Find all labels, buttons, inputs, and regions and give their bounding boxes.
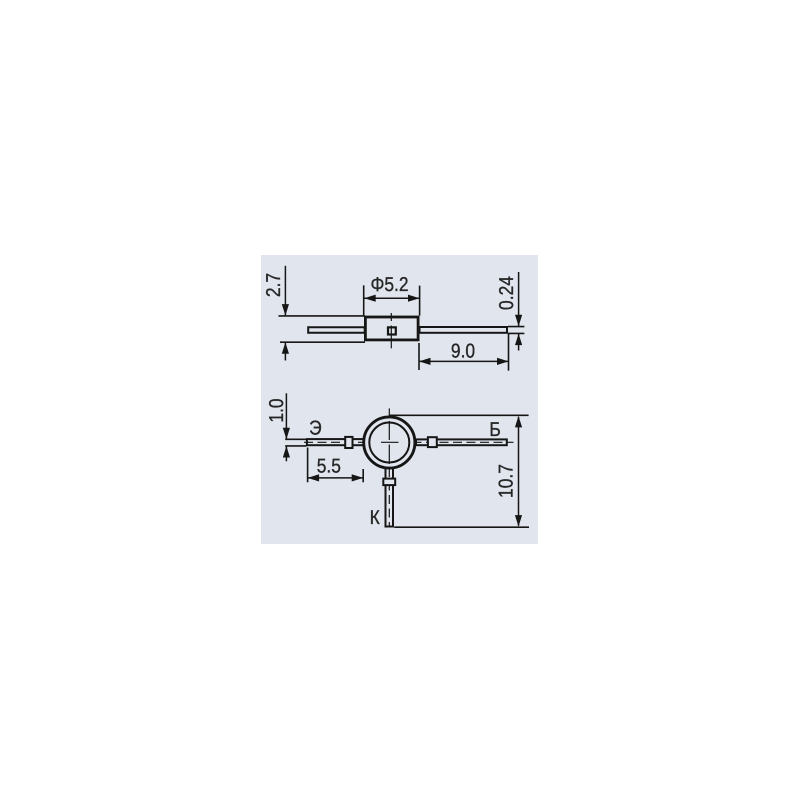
svg-text:9.0: 9.0 <box>451 340 475 362</box>
svg-text:10.7: 10.7 <box>496 464 518 498</box>
svg-text:Φ5.2: Φ5.2 <box>370 274 408 296</box>
svg-text:2.7: 2.7 <box>263 273 285 297</box>
svg-text:5.5: 5.5 <box>317 455 341 477</box>
svg-text:1.0: 1.0 <box>266 398 288 422</box>
svg-text:К: К <box>370 507 380 529</box>
svg-text:Б: Б <box>489 419 500 441</box>
svg-text:0.24: 0.24 <box>496 276 518 310</box>
svg-text:Э: Э <box>309 418 322 440</box>
